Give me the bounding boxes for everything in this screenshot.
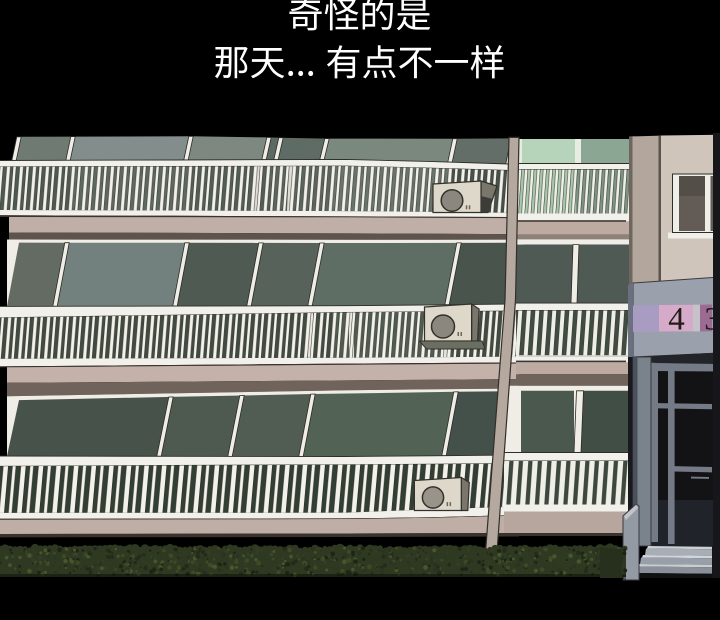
svg-text:4: 4 bbox=[668, 302, 685, 338]
